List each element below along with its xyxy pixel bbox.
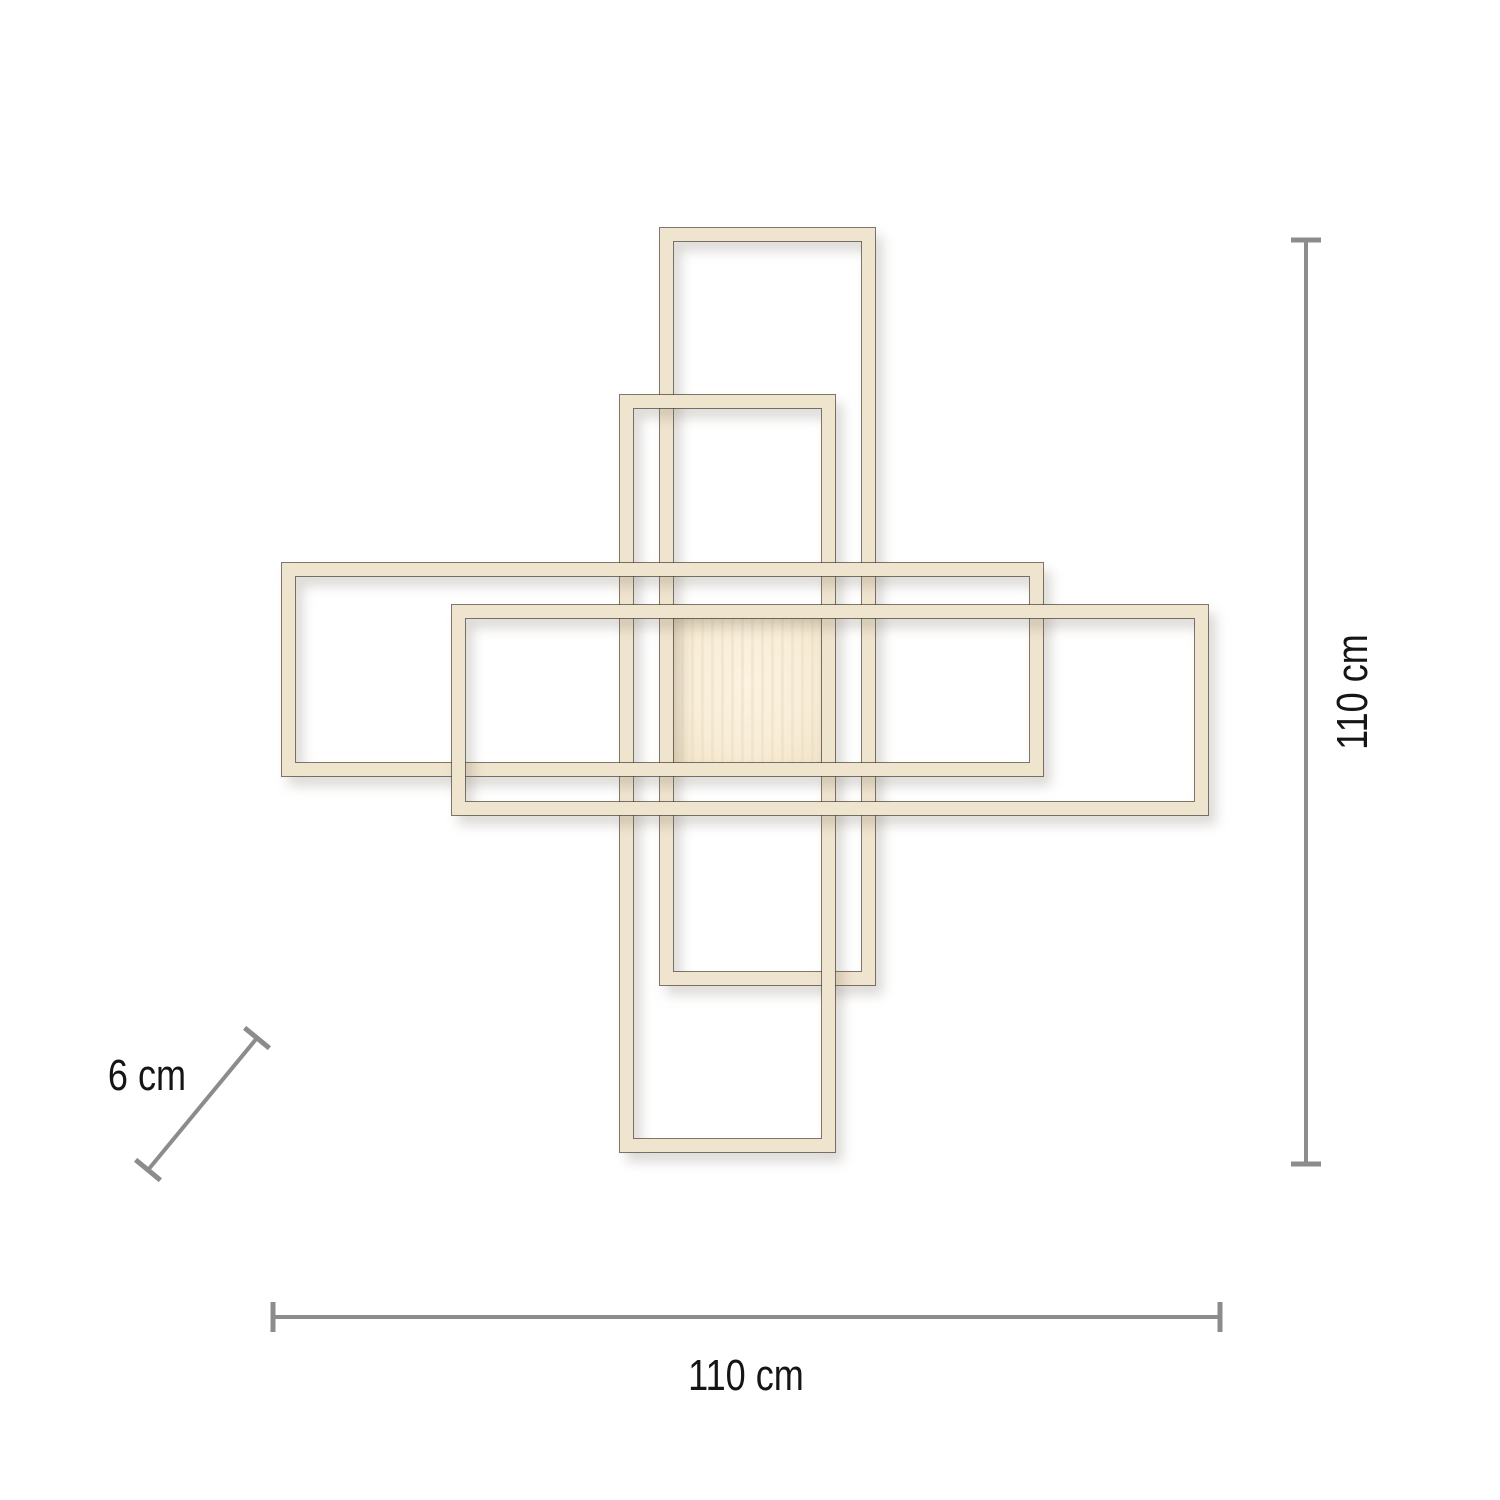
product-dimension-diagram: 110 cm 110 cm 6 cm [0, 0, 1500, 1500]
depth-dimension-text: 6 cm [108, 1051, 186, 1101]
height-dimension-text: 110 cm [1328, 634, 1378, 750]
frame-horizontal-right [452, 605, 1208, 815]
height-dimension-label: 110 cm [1328, 621, 1378, 762]
depth-dimension-label: 6 cm [99, 1051, 194, 1101]
width-dimension-label: 110 cm [675, 1351, 816, 1401]
width-dimension-line [273, 1302, 1220, 1332]
width-dimension-text: 110 cm [688, 1351, 804, 1401]
height-dimension-line [1291, 240, 1321, 1164]
